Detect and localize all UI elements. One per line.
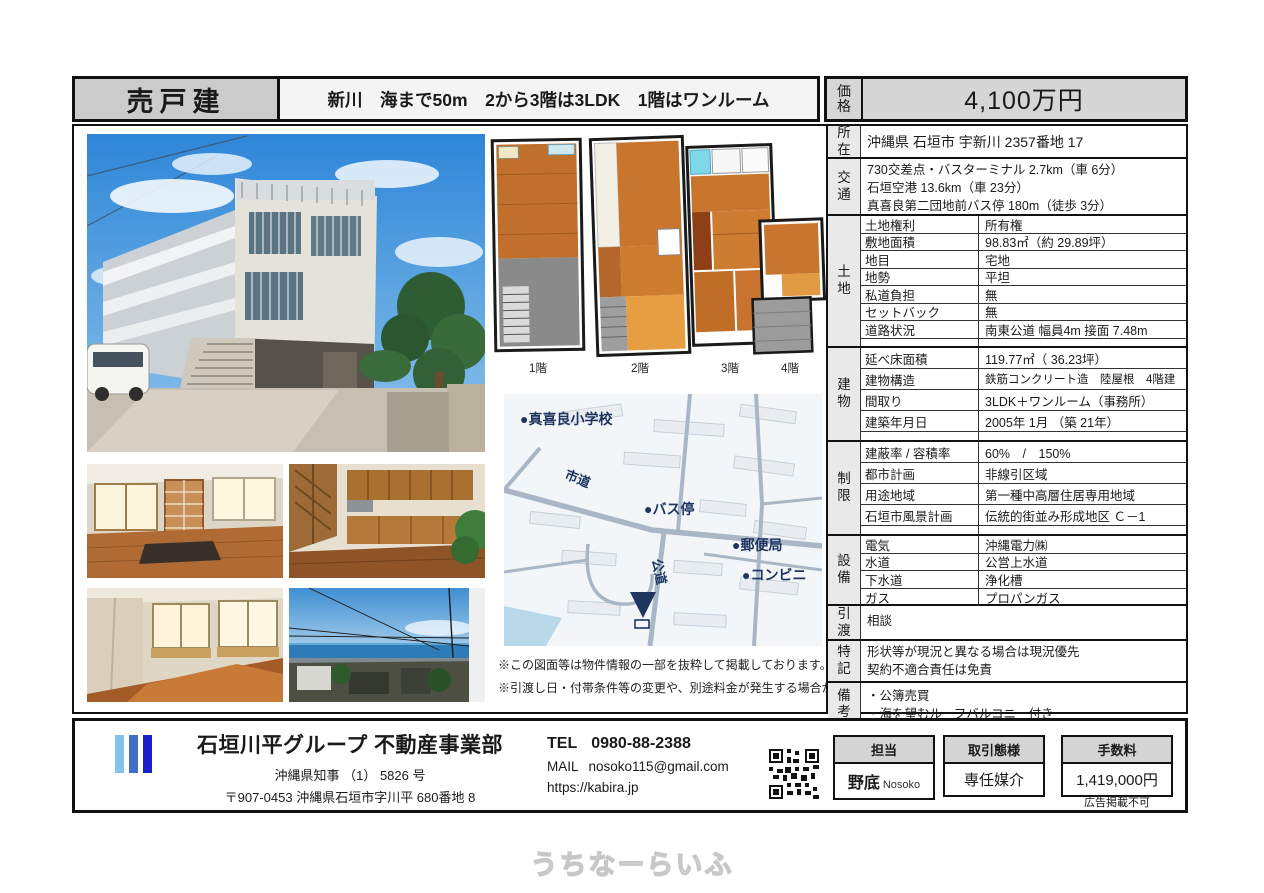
spec-key: 下水道 xyxy=(861,571,979,588)
company-address: 〒907-0453 沖縄県石垣市字川平 680番地 8 xyxy=(165,787,535,806)
spec-key: 石垣市風景計画 xyxy=(861,505,979,525)
exterior-photo xyxy=(87,134,485,452)
floor-label-3f: 3階 xyxy=(721,361,739,375)
spec-value: プロパンガス xyxy=(979,587,1186,608)
map-label-school: ●真喜良小学校 xyxy=(520,411,613,427)
mail-label: MAIL xyxy=(547,759,579,774)
section-label: 制限 xyxy=(828,442,861,534)
section-label: 引渡 xyxy=(828,606,861,639)
spec-key: 間取り xyxy=(861,390,979,410)
company-name: 石垣川平グループ 不動産事業部 xyxy=(165,729,535,759)
floor-plans: 1階 2階 3階 4階 xyxy=(490,134,828,384)
spec-key: 地目 xyxy=(861,251,979,268)
map-label-convenience: ●コンビニ xyxy=(742,567,806,583)
website-url[interactable]: https://kabira.jp xyxy=(547,780,729,795)
spec-key: 私道負担 xyxy=(861,286,979,303)
spec-value: 第一種中高層住居専用地域 xyxy=(979,484,1186,505)
tel-number: 0980-88-2388 xyxy=(591,735,691,752)
remark-line: ・公簿売買 xyxy=(867,687,1180,705)
section-label: 特記 xyxy=(828,641,861,681)
floor-label-4f: 4階 xyxy=(781,361,799,375)
company-info: 石垣川平グループ 不動産事業部 沖縄県知事 （1） 5826 号 〒907-04… xyxy=(165,729,535,806)
location-value: 沖縄県 石垣市 宇新川 2357番地 17 xyxy=(861,126,1186,157)
fee-note: 広告掲載不可 xyxy=(1061,794,1173,810)
footer-company-box: 石垣川平グループ 不動産事業部 沖縄県知事 （1） 5826 号 〒907-04… xyxy=(72,718,1188,813)
mail-address[interactable]: nosoko115@gmail.com xyxy=(589,759,729,774)
section-label: 建物 xyxy=(828,348,861,440)
interior-photo-kitchen xyxy=(289,464,485,578)
handover-value: 相談 xyxy=(861,606,1186,639)
contact-info: TEL0980-88-2388 MAILnosoko115@gmail.com … xyxy=(547,735,729,795)
spec-key: 土地権利 xyxy=(861,216,979,233)
license-number: 沖縄県知事 （1） 5826 号 xyxy=(165,765,535,784)
transport-line: 真喜良第二団地前バス停 180m（徒歩 3分） xyxy=(867,197,1180,215)
spec-value: 3LDK＋ワンルーム（事務所） xyxy=(979,390,1186,411)
spec-value: 非線引区域 xyxy=(979,463,1186,484)
section-building: 建物 延べ床面積119.77㎡（ 36.23坪） 建物構造鉄筋コンクリート造 陸… xyxy=(828,348,1186,442)
spec-key: 都市計画 xyxy=(861,463,979,483)
price-value: 4,100万円 xyxy=(863,79,1185,119)
staff-label: 担当 xyxy=(833,735,935,764)
staff-name: 野底 xyxy=(848,775,880,792)
interior-photo-room2 xyxy=(87,588,283,702)
spec-key: ガス xyxy=(861,589,979,607)
spec-key: 水道 xyxy=(861,554,979,571)
fee-box: 手数料 1,419,000円 xyxy=(1061,735,1173,797)
price-box: 価格 4,100万円 xyxy=(824,76,1188,122)
transport-line: 730交差点・バスターミナル 2.7km（車 6分） xyxy=(867,161,1180,179)
spec-value: 2005年 1月 （築 21年） xyxy=(979,411,1186,432)
interior-photo-grid xyxy=(87,464,485,704)
spec-value: 南東公道 幅員4m 接面 7.48m xyxy=(979,319,1186,340)
spec-value: 鉄筋コンクリート造 陸屋根 4階建 xyxy=(979,370,1186,388)
section-label: 交通 xyxy=(828,159,861,214)
spec-key: セットバック xyxy=(861,304,979,321)
section-label: 土地 xyxy=(828,216,861,346)
spec-value: 60% / 150% xyxy=(979,442,1186,463)
fee-label: 手数料 xyxy=(1061,735,1173,764)
qr-code xyxy=(769,749,819,799)
spec-key: 地勢 xyxy=(861,269,979,286)
section-location: 所在 沖縄県 石垣市 宇新川 2357番地 17 xyxy=(828,126,1186,159)
spec-key: 建築年月日 xyxy=(861,411,979,431)
spec-key: 敷地面積 xyxy=(861,234,979,251)
section-utilities: 設備 電気沖縄電力㈱ 水道公営上水道 下水道浄化槽 ガスプロパンガス xyxy=(828,536,1186,606)
staff-romaji: Nosoko xyxy=(883,779,920,791)
rooftop-ocean-view-photo xyxy=(289,588,485,702)
map-label-bus-stop: ●バス停 xyxy=(644,501,694,517)
spec-value: 119.77㎡（ 36.23坪） xyxy=(979,348,1186,369)
transport-line: 石垣空港 13.6km（車 23分） xyxy=(867,179,1180,197)
section-restrictions: 制限 建蔽率 / 容積率60% / 150% 都市計画非線引区域 用途地域第一種… xyxy=(828,442,1186,536)
header-row: 売戸建 新川 海まで50m 2から3階は3LDK 1階はワンルーム xyxy=(72,76,820,122)
spec-key: 建物構造 xyxy=(861,369,979,389)
section-land: 土地 土地権利所有権 敷地面積98.83㎡（約 29.89坪） 地目宅地 地勢平… xyxy=(828,216,1186,348)
transaction-type-box: 取引態様 専任媒介 xyxy=(943,735,1045,797)
location-map: ●真喜良小学校 市道 ●バス停 ●郵便局 ●コンビニ 公道 xyxy=(504,394,822,646)
floor-label-2f: 2階 xyxy=(631,361,649,375)
transaction-type-label: 取引態様 xyxy=(943,735,1045,764)
price-label: 価格 xyxy=(827,79,863,119)
floor-label-1f: 1階 xyxy=(529,361,547,375)
staff-box: 担当 野底Nosoko xyxy=(833,735,935,800)
catch-copy: 新川 海まで50m 2から3階は3LDK 1階はワンルーム xyxy=(280,76,820,122)
special-note-line: 契約不適合責任は免責 xyxy=(867,661,1180,679)
company-logo-icon xyxy=(115,735,152,773)
map-label-post-office: ●郵便局 xyxy=(732,537,782,553)
section-transport: 交通 730交差点・バスターミナル 2.7km（車 6分） 石垣空港 13.6k… xyxy=(828,159,1186,216)
section-special-notes: 特記 形状等が現況と異なる場合は現況優先 契約不適合責任は免責 xyxy=(828,641,1186,683)
spec-key: 道路状況 xyxy=(861,321,979,338)
spec-value: 伝統的街並み形成地区 Ｃ－1 xyxy=(979,505,1186,526)
tel-label: TEL xyxy=(547,735,577,752)
spec-key: 建蔽率 / 容積率 xyxy=(861,442,979,462)
special-note-line: 形状等が現況と異なる場合は現況優先 xyxy=(867,643,1180,661)
section-label: 設備 xyxy=(828,536,861,604)
spec-key: 延べ床面積 xyxy=(861,348,979,368)
section-handover: 引渡 相談 xyxy=(828,606,1186,641)
fee-value: 1,419,000円 xyxy=(1061,764,1173,797)
section-label: 所在 xyxy=(828,126,861,157)
interior-photo-room1 xyxy=(87,464,283,578)
spec-key: 電気 xyxy=(861,536,979,553)
site-watermark: うちなーらいふ xyxy=(531,843,734,882)
property-spec-table: 所在 沖縄県 石垣市 宇新川 2357番地 17 交通 730交差点・バスターミ… xyxy=(826,126,1186,712)
transaction-type-value: 専任媒介 xyxy=(943,764,1045,797)
property-type-badge: 売戸建 xyxy=(72,76,280,122)
main-content-box: 1階 2階 3階 4階 xyxy=(72,124,1188,714)
spec-key: 用途地域 xyxy=(861,484,979,504)
